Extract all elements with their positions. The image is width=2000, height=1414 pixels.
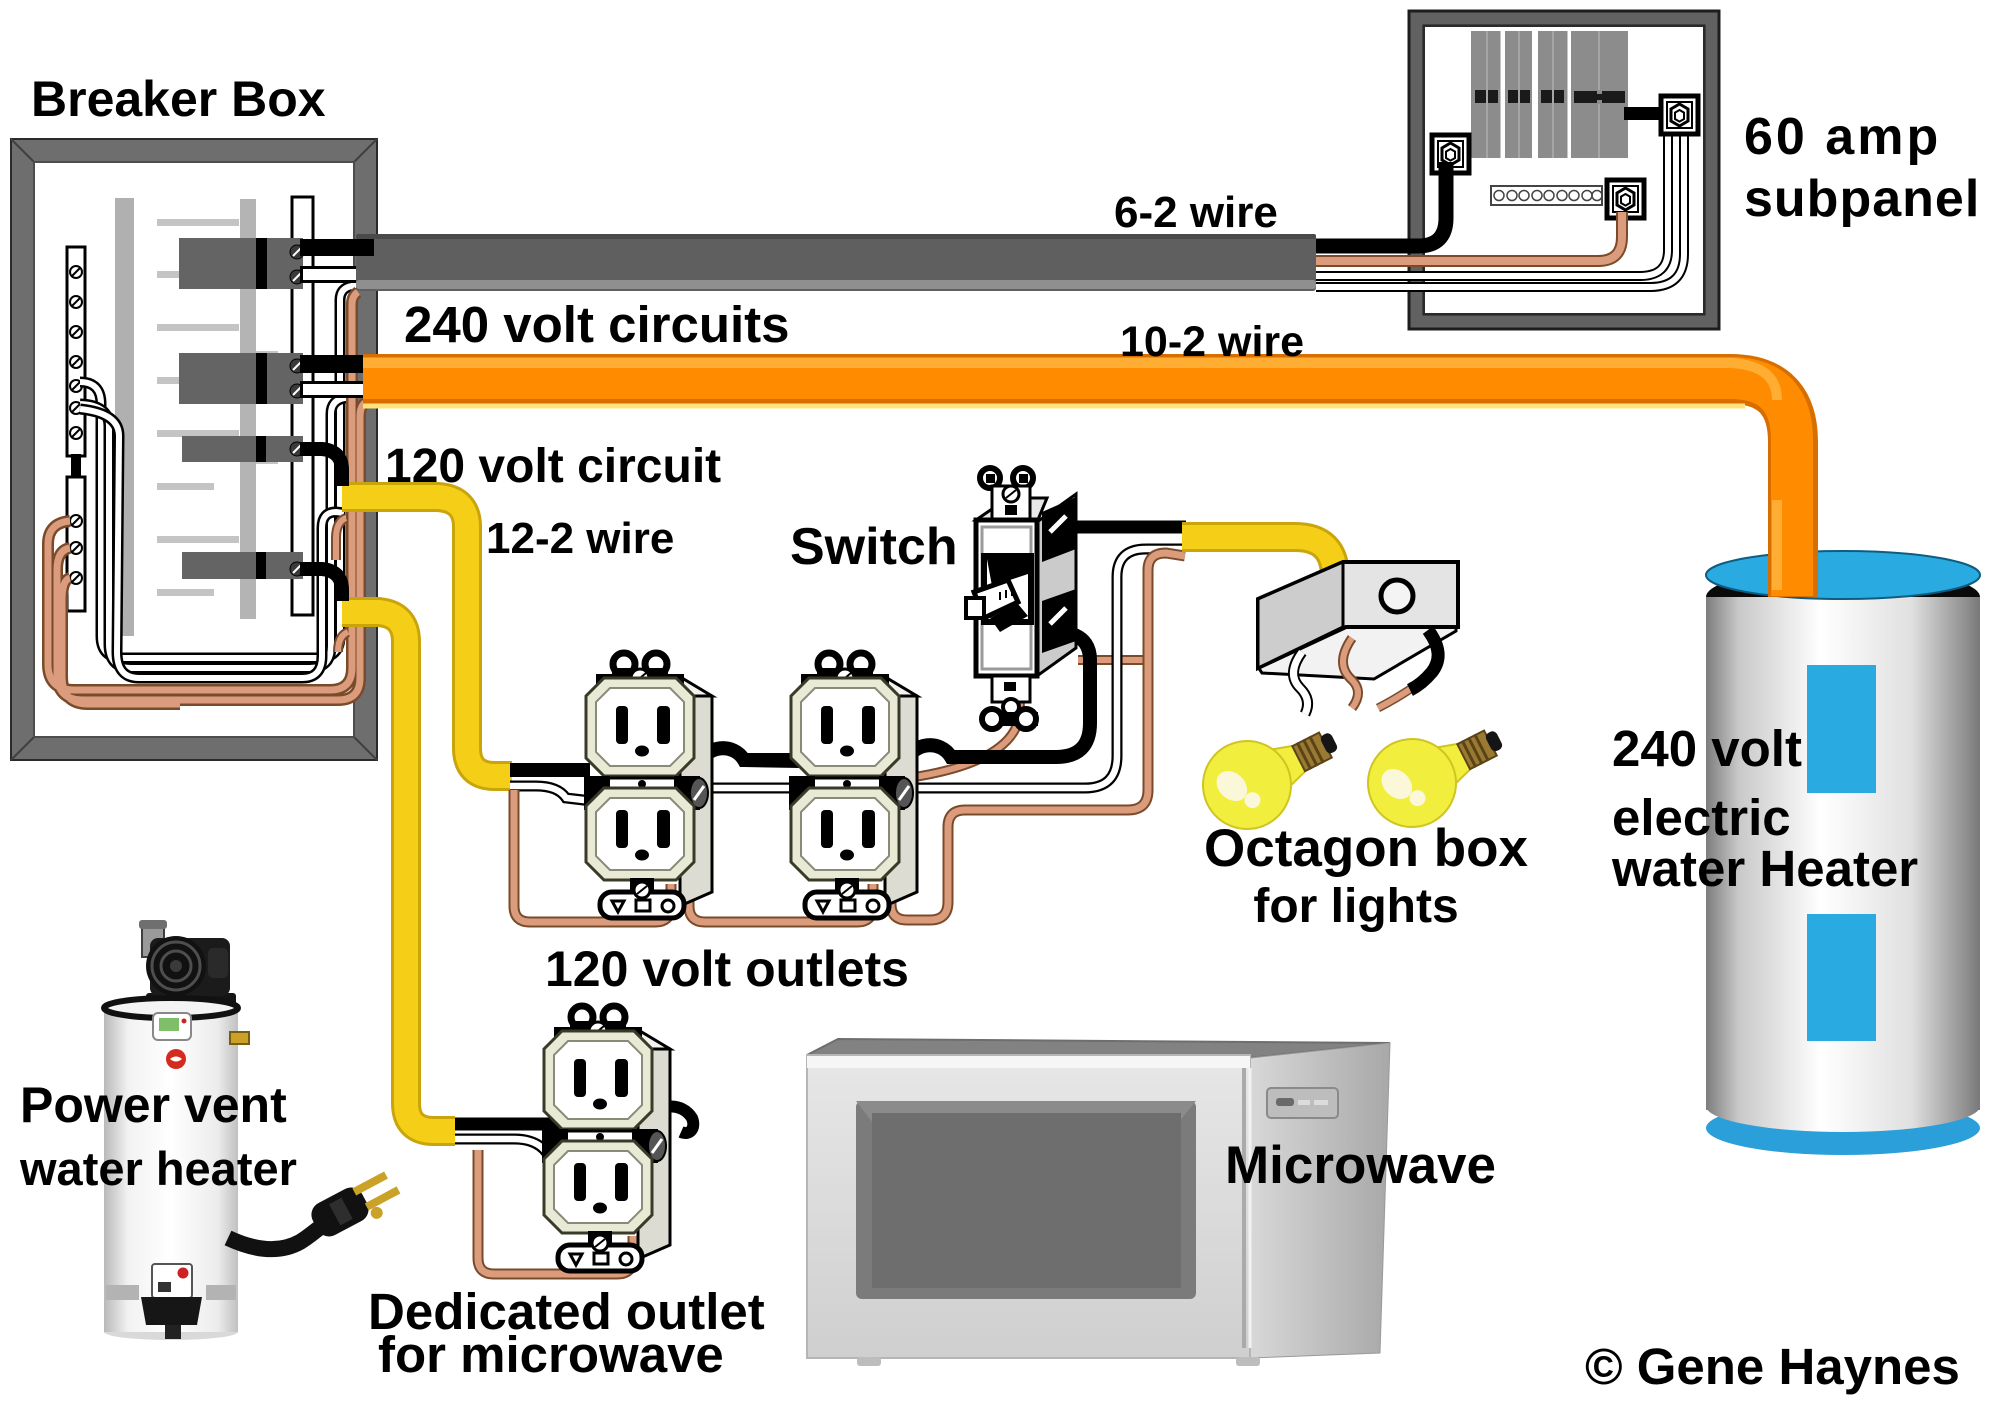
svg-text:12-2 wire: 12-2 wire <box>486 514 674 563</box>
svg-text:subpanel: subpanel <box>1744 170 1980 228</box>
svg-text:240 volt: 240 volt <box>1612 720 1802 777</box>
svg-text:Switch: Switch <box>790 518 958 576</box>
svg-text:120 volt circuit: 120 volt circuit <box>385 440 721 493</box>
svg-text:240 volt circuits: 240 volt circuits <box>404 296 790 353</box>
svg-text:water heater: water heater <box>19 1142 297 1195</box>
svg-text:120 volt outlets: 120 volt outlets <box>545 941 909 997</box>
svg-text:Microwave: Microwave <box>1225 1136 1496 1195</box>
svg-text:electric: electric <box>1612 789 1791 846</box>
svg-text:6-2 wire: 6-2 wire <box>1114 188 1278 237</box>
svg-text:Breaker Box: Breaker Box <box>31 71 326 127</box>
svg-text:10-2 wire: 10-2 wire <box>1120 318 1304 366</box>
svg-text:for lights: for lights <box>1253 880 1458 933</box>
svg-text:Power vent: Power vent <box>20 1077 287 1133</box>
svg-text:Octagon box: Octagon box <box>1204 819 1528 878</box>
svg-text:60 amp: 60 amp <box>1744 108 1941 166</box>
svg-text:for microwave: for microwave <box>378 1326 724 1383</box>
svg-text:water Heater: water Heater <box>1611 840 1918 897</box>
svg-text:© Gene Haynes: © Gene Haynes <box>1585 1338 1960 1395</box>
